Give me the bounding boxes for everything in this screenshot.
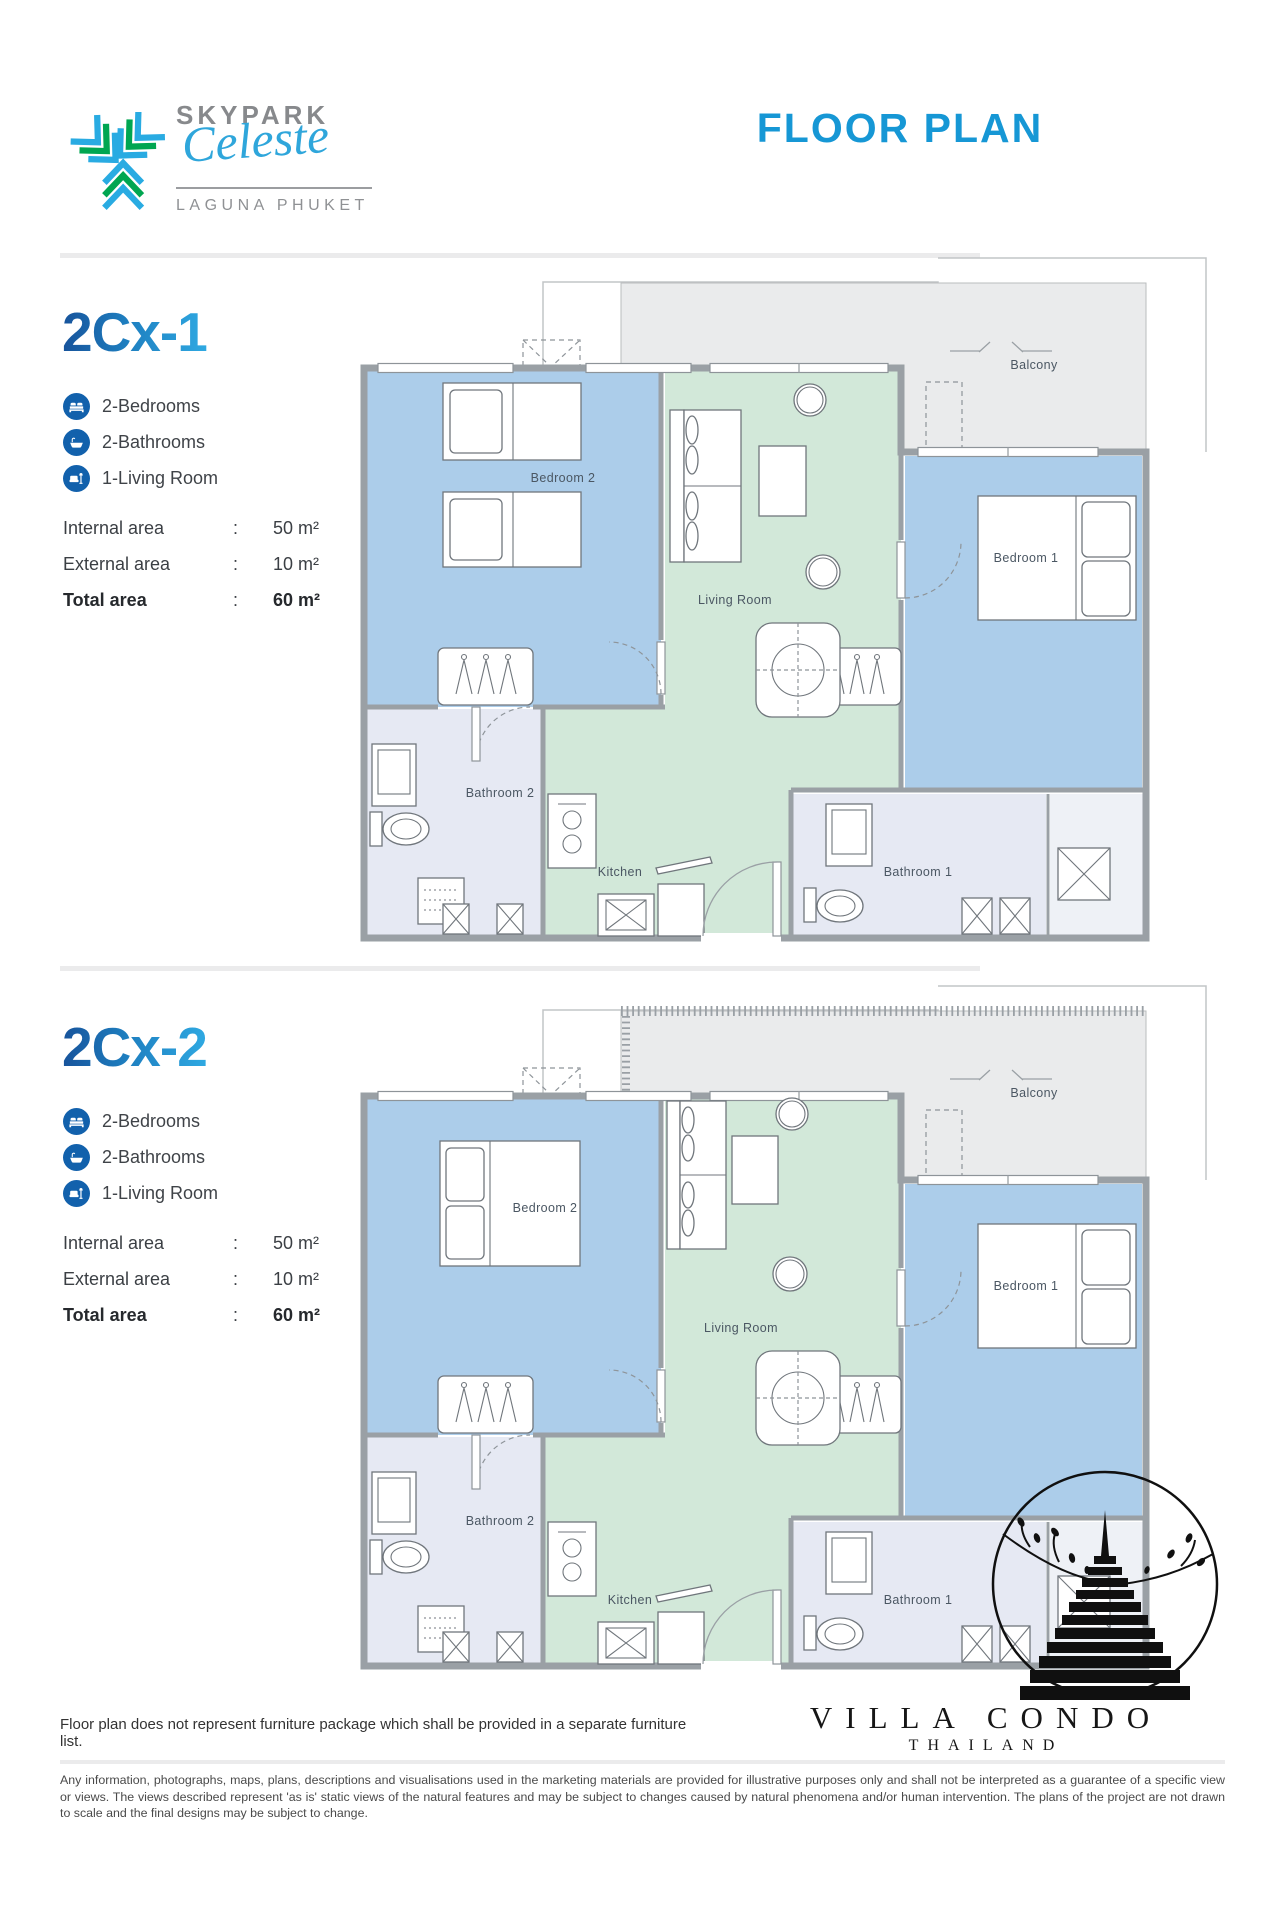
pagoda-icon — [1020, 1510, 1190, 1700]
dining-table — [756, 1351, 840, 1445]
bedroom-1-label: Bedroom 1 — [994, 551, 1059, 565]
living-room-label: Living Room — [698, 593, 772, 607]
area-row-external: External area : 10 m² — [63, 554, 363, 575]
wardrobe — [438, 1376, 533, 1433]
area-row-total: Total area : 60 m² — [63, 1305, 363, 1326]
wardrobe — [438, 648, 533, 705]
villa-condo-logo-icon — [975, 1462, 1245, 1702]
colon: : — [233, 1233, 273, 1254]
sofa-icon — [63, 1180, 90, 1207]
bed-icon — [63, 393, 90, 420]
area-row-internal: Internal area : 50 m² — [63, 1233, 363, 1254]
area-row-total: Total area : 60 m² — [63, 590, 363, 611]
bathroom-1-label: Bathroom 1 — [884, 1593, 953, 1607]
brand-location: LAGUNA PHUKET — [176, 197, 369, 215]
colon: : — [233, 518, 273, 539]
bedroom-2-label: Bedroom 2 — [531, 471, 596, 485]
sofa — [667, 1101, 726, 1249]
coffee-table — [759, 446, 806, 516]
feature-label: 1-Living Room — [102, 1183, 218, 1204]
bathroom-2-label: Bathroom 2 — [466, 1514, 535, 1528]
footer-disclaimer: Any information, photographs, maps, plan… — [60, 1772, 1225, 1822]
coffee-table — [732, 1136, 778, 1204]
sofa-icon — [63, 465, 90, 492]
bathtub-icon — [63, 429, 90, 456]
twin-bed — [443, 383, 581, 460]
living-room-label: Living Room — [704, 1321, 778, 1335]
side-table — [806, 555, 840, 589]
area-row-internal: Internal area : 50 m² — [63, 518, 363, 539]
feature-label: 2-Bathrooms — [102, 432, 205, 453]
colon: : — [233, 554, 273, 575]
villa-condo-country: THAILAND — [760, 1737, 1212, 1755]
unit-1-area-table: Internal area : 50 m² External area : 10… — [63, 518, 363, 626]
bed-icon — [63, 1108, 90, 1135]
floor-plan-2cx-1: Balcony Bedroom 2 Bedroom 1 Living Room … — [358, 250, 1208, 950]
bedroom-2-label: Bedroom 2 — [513, 1201, 578, 1215]
unit-1-title: 2Cx-1 — [62, 300, 207, 364]
unit-2-features: 2-Bedrooms 2-Bathrooms 1-Living Room — [63, 1107, 363, 1215]
side-table — [776, 1098, 808, 1130]
side-table — [794, 384, 826, 416]
bathtub-icon — [63, 1144, 90, 1171]
colon: : — [233, 1269, 273, 1290]
feature-row: 2-Bedrooms — [63, 392, 363, 421]
twin-bed — [443, 492, 581, 567]
brand-script: Celeste — [180, 106, 331, 174]
feature-label: 2-Bathrooms — [102, 1147, 205, 1168]
villa-condo-wordmark: VILLA CONDO — [760, 1700, 1212, 1736]
feature-row: 1-Living Room — [63, 1179, 363, 1208]
feature-row: 2-Bathrooms — [63, 428, 363, 457]
balcony-label: Balcony — [1010, 358, 1058, 372]
feature-label: 2-Bedrooms — [102, 1111, 200, 1132]
feature-row: 2-Bedrooms — [63, 1107, 363, 1136]
feature-row: 1-Living Room — [63, 464, 363, 493]
colon: : — [233, 1305, 273, 1326]
unit-2-title: 2Cx-2 — [62, 1015, 207, 1079]
page-title: FLOOR PLAN — [660, 105, 1140, 152]
bathroom-2-label: Bathroom 2 — [466, 786, 535, 800]
feature-label: 2-Bedrooms — [102, 396, 200, 417]
bathroom-1-label: Bathroom 1 — [884, 865, 953, 879]
colon: : — [233, 590, 273, 611]
kitchen-label: Kitchen — [598, 865, 643, 879]
sofa — [670, 410, 741, 562]
area-row-external: External area : 10 m² — [63, 1269, 363, 1290]
kitchen-label: Kitchen — [608, 1593, 653, 1607]
bedroom-1-label: Bedroom 1 — [994, 1279, 1059, 1293]
skypark-logo-mark-icon — [70, 112, 170, 212]
section-divider-2 — [60, 966, 980, 971]
unit-1-features: 2-Bedrooms 2-Bathrooms 1-Living Room — [63, 392, 363, 500]
feature-label: 1-Living Room — [102, 468, 218, 489]
brand-rule — [176, 187, 372, 189]
dining-table — [756, 623, 840, 717]
footer-divider — [60, 1760, 1225, 1764]
balcony-label: Balcony — [1010, 1086, 1058, 1100]
footer-note: Floor plan does not represent furniture … — [60, 1716, 700, 1750]
unit-2-area-table: Internal area : 50 m² External area : 10… — [63, 1233, 363, 1341]
side-table — [773, 1257, 807, 1291]
feature-row: 2-Bathrooms — [63, 1143, 363, 1172]
